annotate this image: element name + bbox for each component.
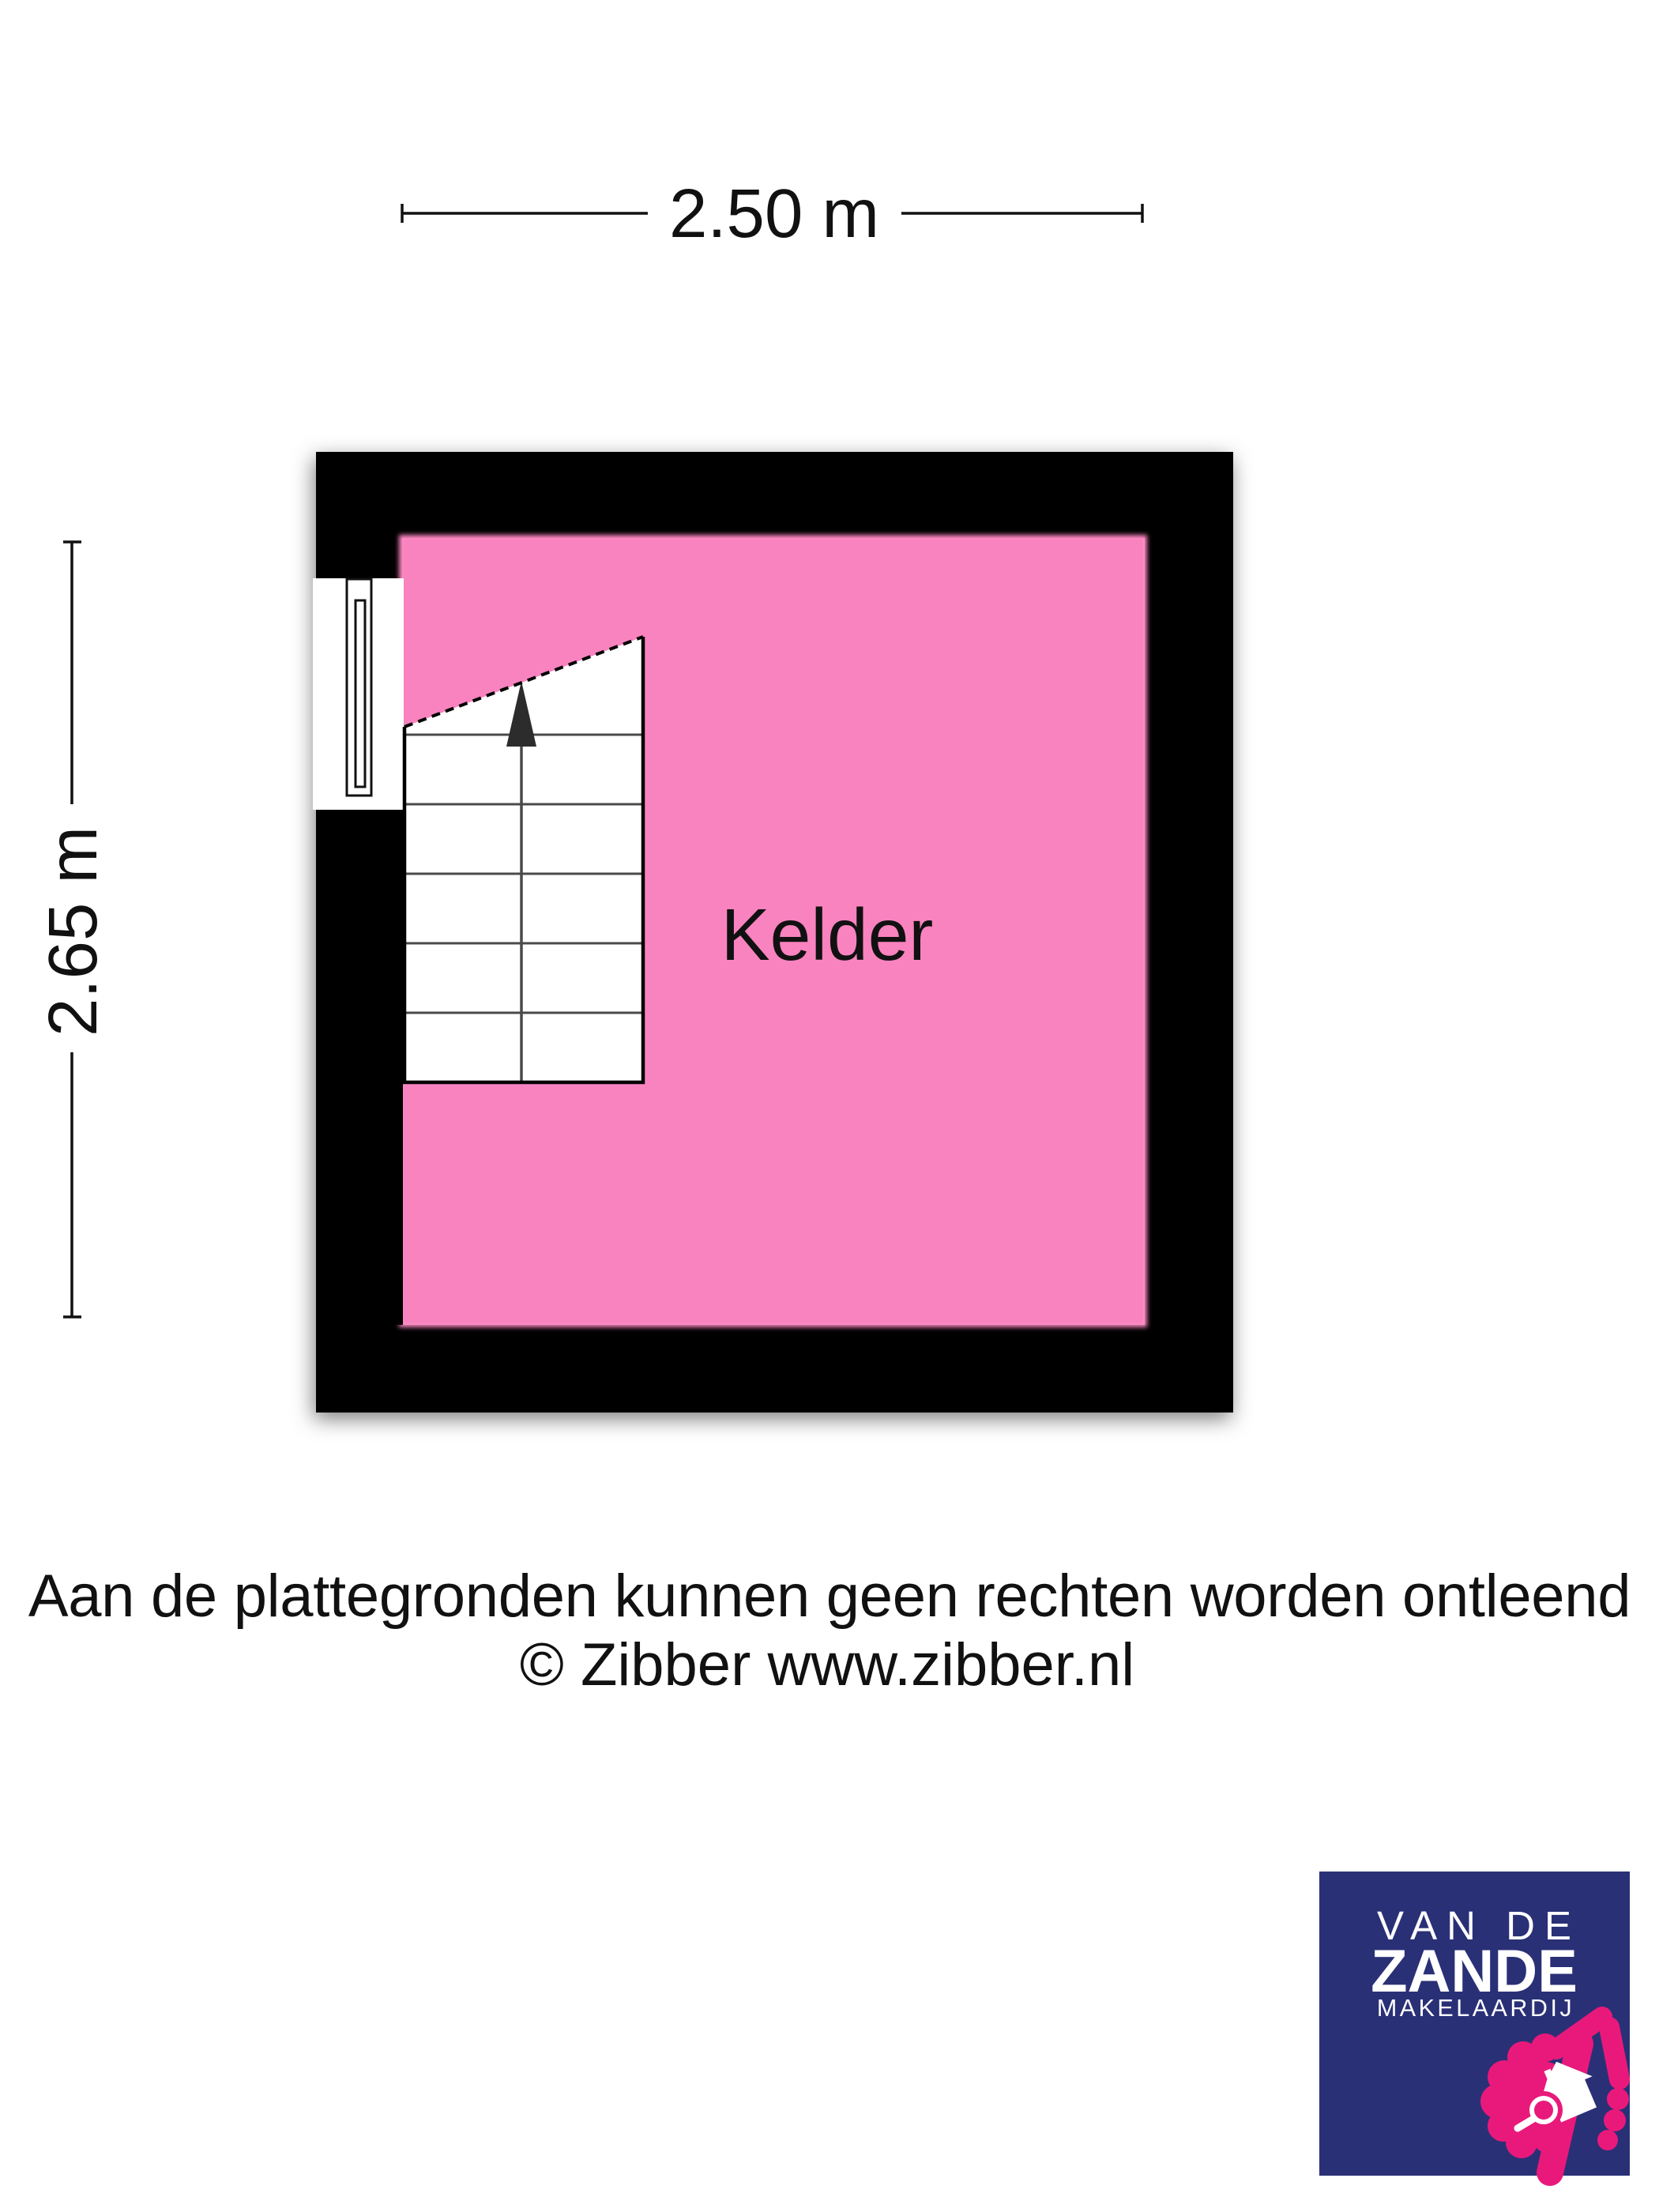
- svg-text:2.65 m: 2.65 m: [35, 826, 111, 1036]
- svg-text:2.50 m: 2.50 m: [669, 175, 879, 252]
- svg-text:© Zibber www.zibber.nl: © Zibber www.zibber.nl: [520, 1631, 1134, 1698]
- svg-text:MAKELAARDIJ: MAKELAARDIJ: [1377, 1995, 1574, 2022]
- svg-text:Aan de plattegronden kunnen ge: Aan de plattegronden kunnen geen rechten…: [28, 1563, 1631, 1630]
- svg-text:Kelder: Kelder: [721, 893, 934, 976]
